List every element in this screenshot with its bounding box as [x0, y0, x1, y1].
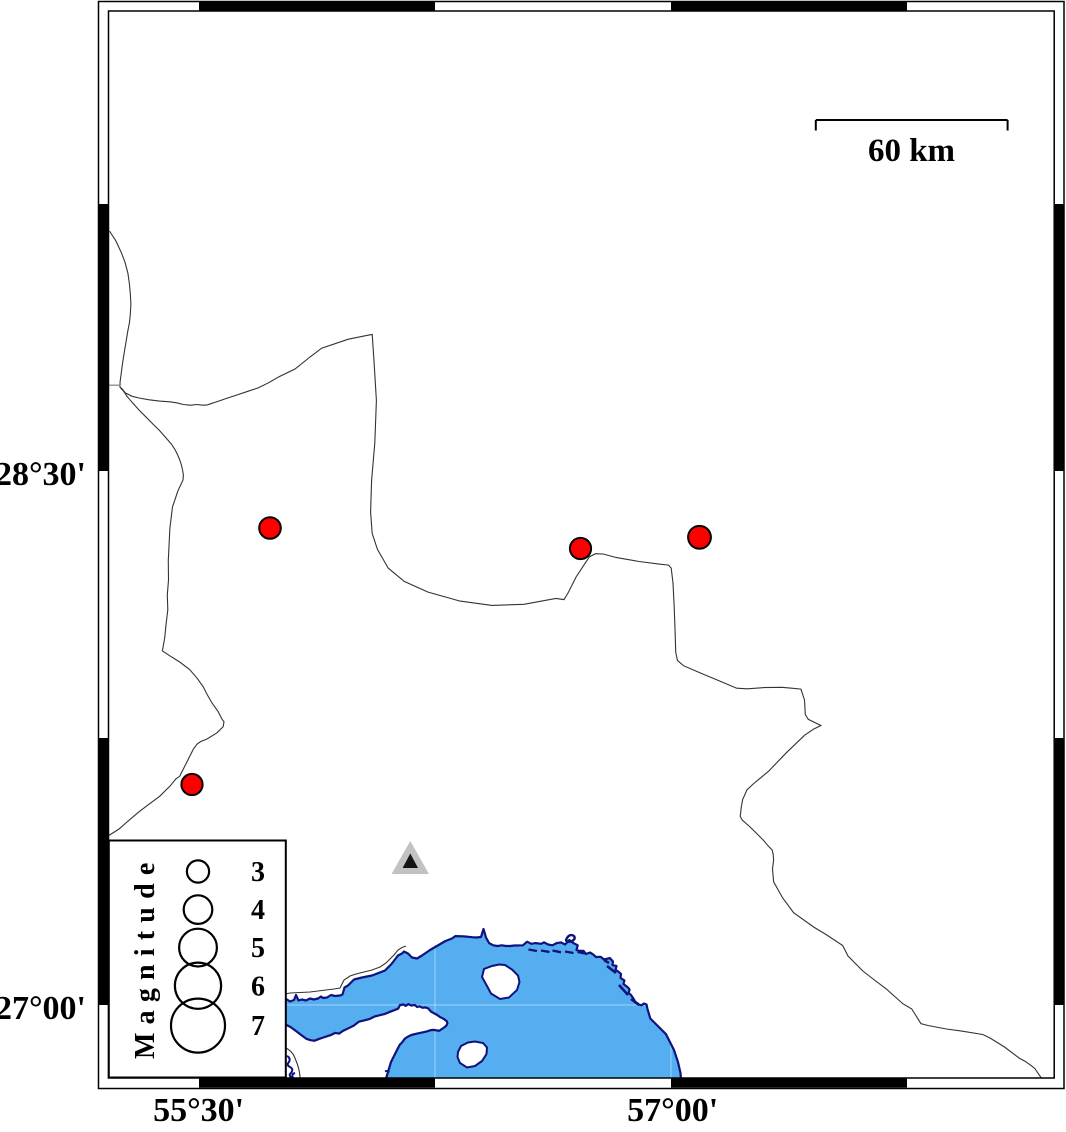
svg-text:6: 6 [251, 971, 265, 1002]
svg-text:60 km: 60 km [868, 133, 955, 169]
svg-text:Magnitude: Magnitude [130, 855, 161, 1059]
svg-text:27°00': 27°00' [0, 990, 86, 1027]
svg-text:55°30': 55°30' [153, 1092, 244, 1127]
svg-text:7: 7 [251, 1011, 265, 1042]
svg-text:5: 5 [251, 933, 265, 964]
svg-text:4: 4 [251, 895, 265, 926]
svg-text:28°30': 28°30' [0, 456, 86, 493]
svg-text:57°00': 57°00' [627, 1092, 718, 1127]
svg-text:3: 3 [251, 857, 265, 888]
